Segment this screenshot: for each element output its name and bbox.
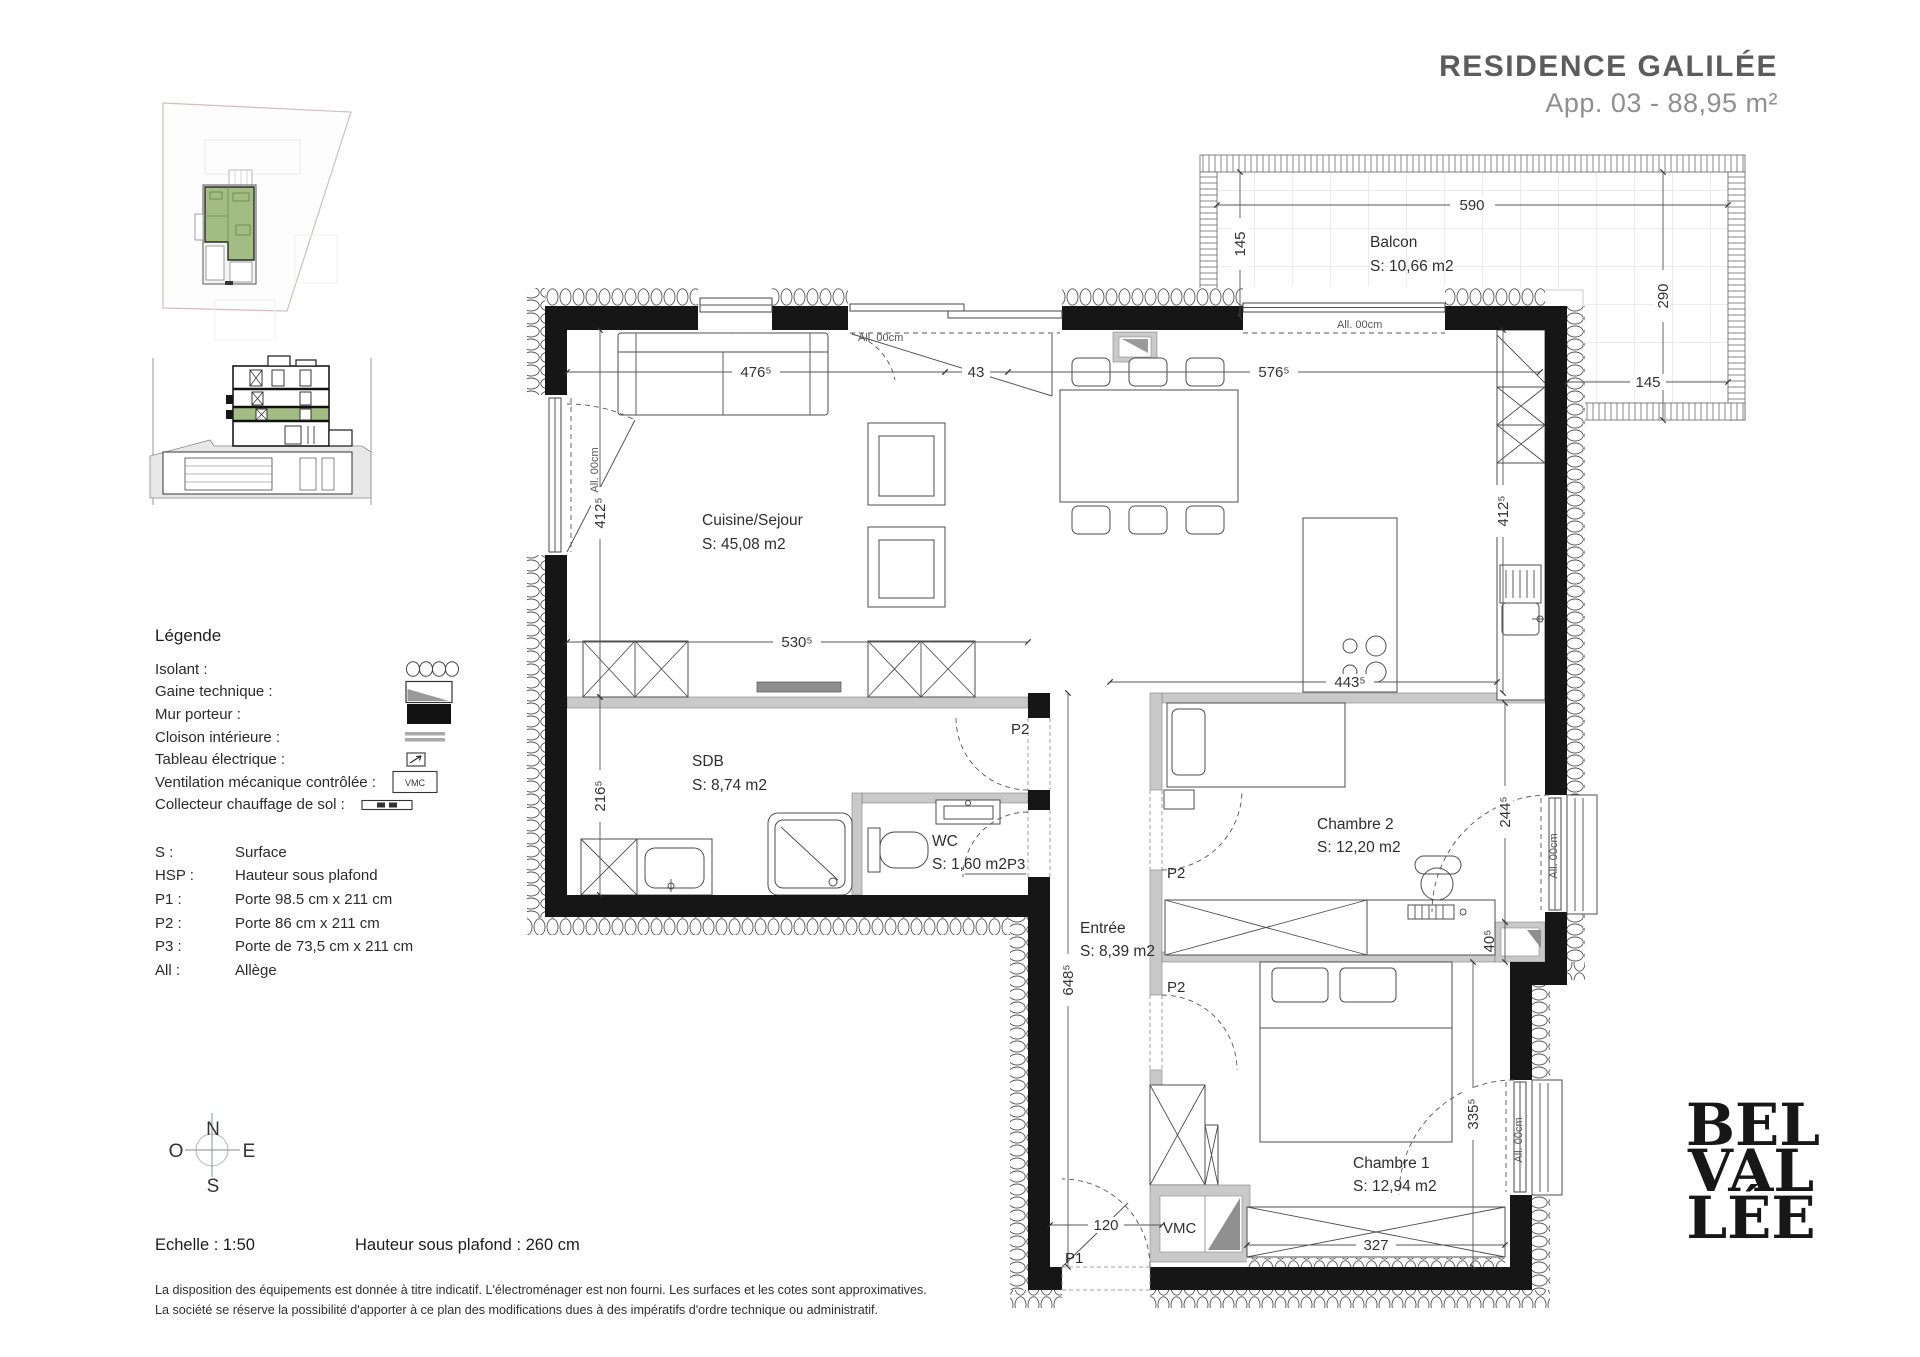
dim-island: 443⁵ xyxy=(1334,674,1365,691)
load-bearing-wall-icon xyxy=(405,703,455,725)
abbr-value: Surface xyxy=(235,844,287,861)
disclaimer-line-1: La disposition des équipements est donné… xyxy=(155,1280,955,1300)
dim-chambre1-height: 335⁵ xyxy=(1465,1098,1482,1129)
room-chambre2-name: Chambre 2 xyxy=(1317,816,1394,833)
abbr-key: P2 : xyxy=(155,915,235,932)
dim-shaft: 40⁵ xyxy=(1481,930,1498,953)
vmc-icon: VMC xyxy=(392,770,440,794)
compass-north: N xyxy=(206,1119,220,1140)
ceiling-height-label: Hauteur sous plafond : 260 cm xyxy=(355,1236,580,1255)
abbr-value: Porte 86 cm x 211 cm xyxy=(235,915,380,932)
room-chambre1-name: Chambre 1 xyxy=(1353,1155,1430,1172)
compass-east: E xyxy=(243,1141,256,1162)
door-label-p3-wc: P3 xyxy=(1007,856,1025,873)
legend: Légende Isolant : Gaine technique : Mur … xyxy=(155,626,715,982)
room-chambre2-surface: S: 12,20 m2 xyxy=(1317,839,1401,856)
technical-duct-icon xyxy=(405,680,455,704)
room-cuisine-name: Cuisine/Sejour xyxy=(702,512,803,529)
legend-item-vmc: Ventilation mécanique contrôlée : VMC xyxy=(155,771,715,794)
abbr-value: Allège xyxy=(235,962,277,979)
room-wc-surface: S: 1,60 m2 xyxy=(932,856,1007,873)
abbr-row: P1 : Porte 98.5 cm x 211 cm xyxy=(155,888,715,912)
room-chambre1-surface: S: 12,94 m2 xyxy=(1353,1178,1437,1195)
compass-west: O xyxy=(169,1141,184,1162)
legend-item-mur: Mur porteur : xyxy=(155,703,715,726)
legend-item-collecteur: Collecteur chauffage de sol : xyxy=(155,794,715,817)
vmc-icon-text: VMC xyxy=(405,778,426,788)
title-block: RESIDENCE GALILÉE App. 03 - 88,95 m² xyxy=(1439,50,1778,119)
dim-entree-length: 648⁵ xyxy=(1060,964,1077,995)
sill-label-chambre1: All. 00cm xyxy=(1513,1117,1525,1162)
floor-heating-collector-icon xyxy=(361,798,415,812)
dim-living-left: 412⁵ xyxy=(592,497,609,528)
dim-living-top-right: 576⁵ xyxy=(1258,364,1289,381)
door-label-p2-sdb: P2 xyxy=(1011,721,1029,738)
legend-item-label: Collecteur chauffage de sol : xyxy=(155,796,345,813)
legend-abbreviations: S : Surface HSP : Hauteur sous plafond P… xyxy=(155,840,715,982)
dim-kitchen-right: 412⁵ xyxy=(1495,495,1512,526)
abbr-row: P3 : Porte de 73,5 cm x 211 cm xyxy=(155,935,715,959)
logo-line-3: LÉE xyxy=(1686,1195,1816,1241)
abbr-key: S : xyxy=(155,844,235,861)
sill-label-chambre2: All. 00cm xyxy=(1548,833,1560,878)
door-label-p1-entry: P1 xyxy=(1065,1250,1083,1267)
dim-balcony-depth-left: 145 xyxy=(1232,231,1249,256)
room-entree-surface: S: 8,39 m2 xyxy=(1080,943,1155,960)
legend-item-isolant: Isolant : xyxy=(155,658,715,681)
vmc-label: VMC xyxy=(1163,1220,1197,1237)
sill-label-west: All. 00cm xyxy=(589,447,601,492)
page-subtitle: App. 03 - 88,95 m² xyxy=(1439,88,1778,119)
dim-chambre1-width: 327 xyxy=(1363,1237,1388,1254)
abbr-key: P1 : xyxy=(155,891,235,908)
scale-label: Echelle : 1:50 xyxy=(155,1236,255,1255)
legend-item-label: Mur porteur : xyxy=(155,706,405,723)
partition-icon xyxy=(405,730,447,744)
legend-item-gaine: Gaine technique : xyxy=(155,681,715,704)
building-section xyxy=(150,356,371,505)
site-plan xyxy=(163,103,351,340)
sill-label-kitchen: All. 00cm xyxy=(1337,319,1382,331)
legend-item-label: Gaine technique : xyxy=(155,683,405,700)
dim-chambre2-height: 244⁵ xyxy=(1497,796,1514,827)
legend-item-label: Tableau électrique : xyxy=(155,751,405,768)
dim-balcony-bottom: 145 xyxy=(1635,374,1660,391)
abbr-key: All : xyxy=(155,962,235,979)
legend-item-cloison: Cloison intérieure : xyxy=(155,726,715,749)
room-wc-name: WC xyxy=(932,833,958,850)
floor-plan-page: { "header": { "title": "RESIDENCE GALILÉ… xyxy=(0,0,1920,1357)
door-label-p2-chambre1: P2 xyxy=(1167,979,1185,996)
abbr-value: Porte de 73,5 cm x 211 cm xyxy=(235,938,413,955)
abbr-value: Hauteur sous plafond xyxy=(235,867,378,884)
abbr-value: Porte 98.5 cm x 211 cm xyxy=(235,891,392,908)
belvallee-logo: BEL VAL LÉE xyxy=(1686,1102,1816,1241)
room-entree-name: Entrée xyxy=(1080,920,1126,937)
room-cuisine-surface: S: 45,08 m2 xyxy=(702,536,786,553)
page-title: RESIDENCE GALILÉE xyxy=(1439,50,1778,84)
sill-label-living: All. 00cm xyxy=(858,332,903,344)
dim-entry-door-width: 120 xyxy=(1093,1217,1118,1234)
dim-balcony-width: 590 xyxy=(1459,197,1484,214)
dim-living-top-left: 476⁵ xyxy=(740,364,771,381)
dim-mid-wall: 530⁵ xyxy=(781,634,812,651)
legend-item-tableau: Tableau électrique : xyxy=(155,748,715,771)
door-label-p2-chambre2: P2 xyxy=(1167,865,1185,882)
abbr-row: HSP : Hauteur sous plafond xyxy=(155,864,715,888)
room-balcon-name: Balcon xyxy=(1370,234,1417,251)
insulation-icon xyxy=(405,661,459,677)
abbr-row: S : Surface xyxy=(155,840,715,864)
compass-rose: N S O E xyxy=(169,1113,256,1197)
disclaimer-line-2: La société se réserve la possibilité d'a… xyxy=(155,1300,955,1320)
electrical-panel-icon xyxy=(405,751,429,768)
legend-title: Légende xyxy=(155,626,715,646)
abbr-row: P2 : Porte 86 cm x 211 cm xyxy=(155,911,715,935)
legend-item-label: Ventilation mécanique contrôlée : xyxy=(155,774,376,791)
abbr-key: P3 : xyxy=(155,938,235,955)
compass-south: S xyxy=(207,1176,220,1197)
dim-balcony-right: 290 xyxy=(1655,283,1672,308)
legend-item-label: Isolant : xyxy=(155,661,405,678)
dim-duct-width: 43 xyxy=(968,364,985,381)
abbr-row: All : Allège xyxy=(155,959,715,983)
abbr-key: HSP : xyxy=(155,867,235,884)
disclaimer: La disposition des équipements est donné… xyxy=(155,1280,955,1320)
legend-item-label: Cloison intérieure : xyxy=(155,729,405,746)
room-balcon-surface: S: 10,66 m2 xyxy=(1370,258,1454,275)
